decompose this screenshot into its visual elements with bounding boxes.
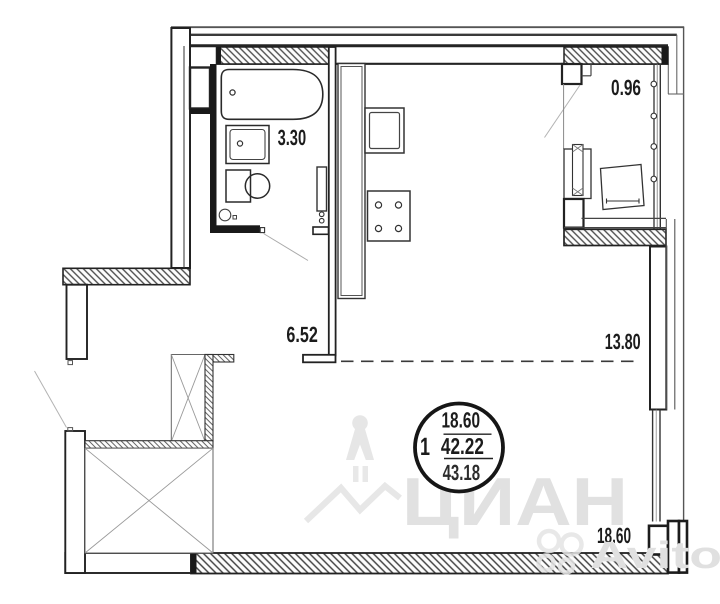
svg-text:42.22: 42.22 [441, 433, 484, 459]
svg-text:Avito: Avito [590, 535, 720, 577]
svg-text:1: 1 [420, 433, 430, 461]
svg-text:0.96: 0.96 [611, 75, 641, 100]
svg-text:13.80: 13.80 [605, 329, 641, 354]
svg-text:18.60: 18.60 [442, 408, 481, 433]
svg-text:43.18: 43.18 [443, 460, 481, 485]
svg-text:3.30: 3.30 [278, 125, 307, 150]
svg-text:6.52: 6.52 [286, 322, 317, 347]
